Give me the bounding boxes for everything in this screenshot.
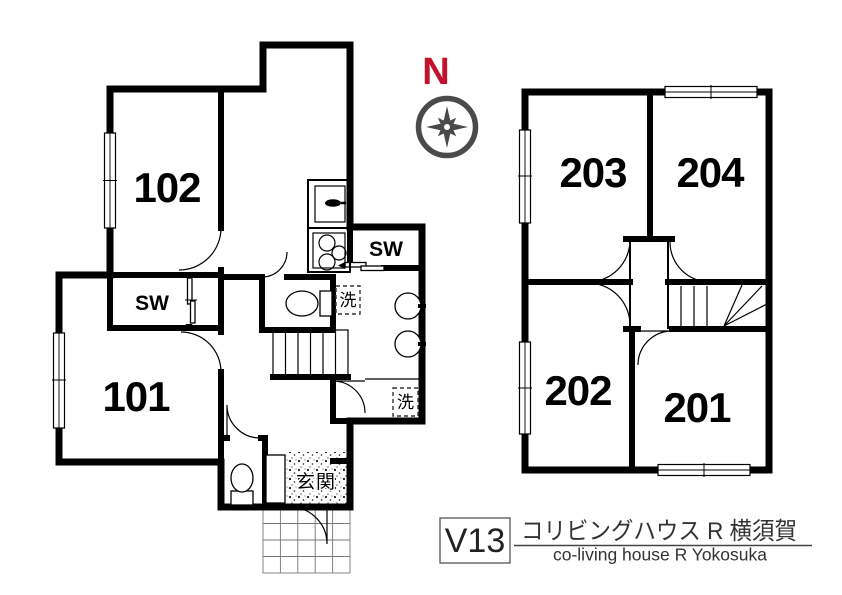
window-204-top <box>665 85 757 99</box>
door-room201 <box>638 331 672 365</box>
window-203-left <box>518 130 532 223</box>
room-102-label: 102 <box>133 164 200 211</box>
door-toilet-entrance <box>227 405 260 438</box>
door-room204 <box>670 242 710 282</box>
room-203-label: 203 <box>559 149 626 196</box>
stairwell-column <box>630 239 668 329</box>
room-201-label: 201 <box>663 384 731 431</box>
door-toilet-1f <box>262 252 287 277</box>
toilet-1f <box>286 291 332 316</box>
window-202-left <box>518 342 532 434</box>
closet-left-label: SW <box>135 292 169 315</box>
compass-star-icon <box>426 106 468 148</box>
door-room202 <box>588 283 630 325</box>
building-name-en: co-living house R Yokosuka <box>553 545 767 565</box>
window-101-left <box>52 333 66 428</box>
entrance-label: 玄関 <box>296 471 336 493</box>
building-name-ja: コリビングハウス R 横須賀 <box>521 518 797 545</box>
floorplan-drawing: 102 101 SW SW 洗 洗 玄関 N <box>0 0 842 595</box>
door-room101 <box>181 332 221 372</box>
door-room102 <box>179 228 221 270</box>
entrance-door <box>290 507 327 544</box>
kitchen-sink <box>308 180 350 228</box>
floorplan-page: 102 101 SW SW 洗 洗 玄関 N <box>0 0 842 595</box>
shoe-cabinet <box>266 455 285 503</box>
first-floor-plan: 102 101 SW SW 洗 洗 玄関 <box>52 45 426 573</box>
title-block: V13 コリビングハウス R 横須賀 co-living house R Yok… <box>440 518 812 565</box>
second-floor-plan: 203 204 202 201 <box>518 85 769 477</box>
laundry-lower-label: 洗 <box>397 393 414 412</box>
stairs-second-floor <box>681 285 769 326</box>
closet-kitchen-label: SW <box>369 238 403 261</box>
entrance-porch-tiles <box>263 507 350 573</box>
toilet-entrance <box>231 464 253 505</box>
plan-code: V13 <box>445 522 506 560</box>
room-101-label: 101 <box>102 373 170 420</box>
compass-rose: N <box>419 51 476 156</box>
laundry-mid-label: 洗 <box>340 291 357 310</box>
room-202-label: 202 <box>544 367 611 414</box>
window-201-bottom <box>658 463 750 477</box>
room-204-label: 204 <box>676 149 745 196</box>
stairs-first-floor <box>273 330 348 376</box>
window-102-left <box>103 133 117 228</box>
door-room203 <box>588 240 630 282</box>
north-label: N <box>422 51 449 93</box>
sliding-door-closet-left <box>185 278 197 331</box>
